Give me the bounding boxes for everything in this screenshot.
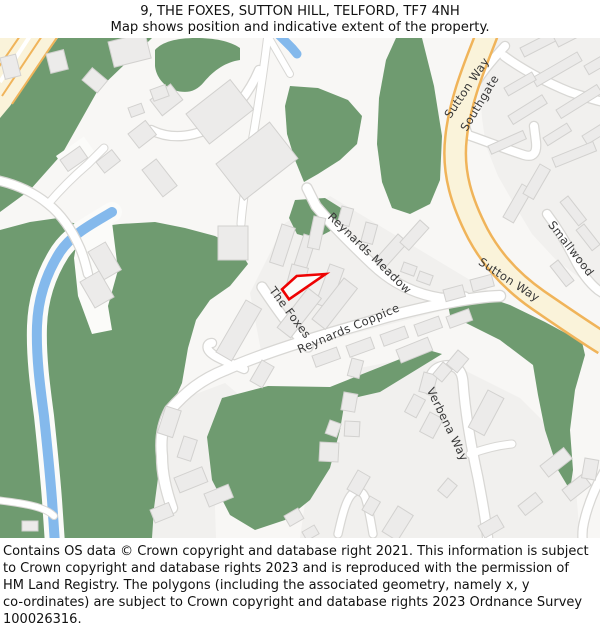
os-map: Reynards Meadow The Foxes Reynards Coppi… xyxy=(0,38,600,538)
map-container: Reynards Meadow The Foxes Reynards Coppi… xyxy=(0,38,600,538)
map-header: 9, THE FOXES, SUTTON HILL, TELFORD, TF7 … xyxy=(0,0,600,38)
page-title: 9, THE FOXES, SUTTON HILL, TELFORD, TF7 … xyxy=(0,4,600,20)
footer-line: 100026316. xyxy=(3,611,597,628)
page-subtitle: Map shows position and indicative extent… xyxy=(0,20,600,36)
footer-line: Contains OS data © Crown copyright and d… xyxy=(3,543,597,560)
copyright-footer: Contains OS data © Crown copyright and d… xyxy=(0,538,600,628)
footer-line: HM Land Registry. The polygons (includin… xyxy=(3,577,597,594)
footer-line: to Crown copyright and database rights 2… xyxy=(3,560,597,577)
footer-line: co-ordinates) are subject to Crown copyr… xyxy=(3,594,597,611)
